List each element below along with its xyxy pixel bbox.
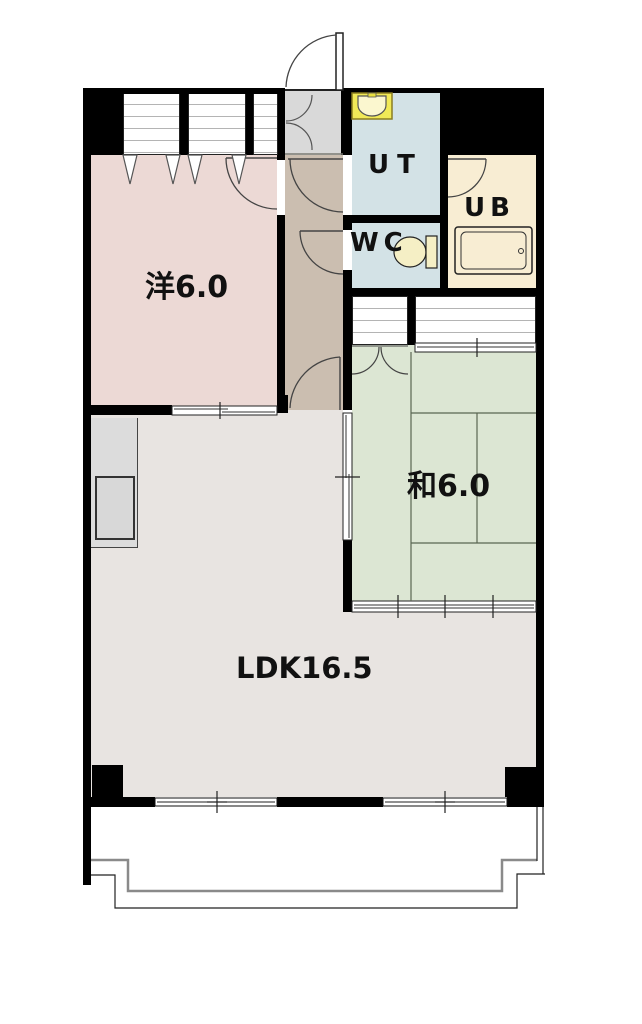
closet-door-arc-icon bbox=[352, 347, 379, 374]
room-western-label: 洋6.0 bbox=[145, 262, 228, 306]
door-arc-icon bbox=[290, 357, 340, 408]
closet-door-v-icon bbox=[232, 155, 246, 184]
closet-door-arc-icon bbox=[381, 347, 408, 374]
balcony-outline bbox=[91, 860, 537, 891]
door-arc-icon bbox=[290, 159, 343, 212]
closet-door-v-icon bbox=[188, 155, 202, 184]
closet-door-v-icon bbox=[123, 155, 137, 184]
sliding-door bbox=[352, 601, 536, 612]
entrance-door-arc-icon bbox=[286, 35, 336, 87]
room-utility-label: UT bbox=[368, 150, 423, 180]
door-arc-icon bbox=[448, 159, 486, 197]
closet-door-arc-icon bbox=[286, 123, 312, 150]
door-arc-icon bbox=[300, 231, 343, 274]
bathtub-icon bbox=[455, 227, 532, 274]
room-japanese-label: 和6.0 bbox=[407, 461, 490, 505]
sink-icon bbox=[352, 93, 392, 119]
plan-linework bbox=[0, 0, 642, 1024]
floorplan: 洋6.0 UT UB WC 和6.0 LDK16.5 bbox=[0, 0, 642, 1024]
closet-door-arc-icon bbox=[286, 95, 312, 121]
door-arc-icon bbox=[226, 158, 277, 209]
room-ldk-label: LDK16.5 bbox=[236, 651, 373, 685]
room-toilet-label: WC bbox=[350, 228, 408, 258]
sliding-door bbox=[172, 406, 277, 415]
room-bath-label: UB bbox=[464, 193, 515, 223]
closet-door-v-icon bbox=[166, 155, 180, 184]
entrance-door-leaf-icon bbox=[336, 33, 343, 90]
